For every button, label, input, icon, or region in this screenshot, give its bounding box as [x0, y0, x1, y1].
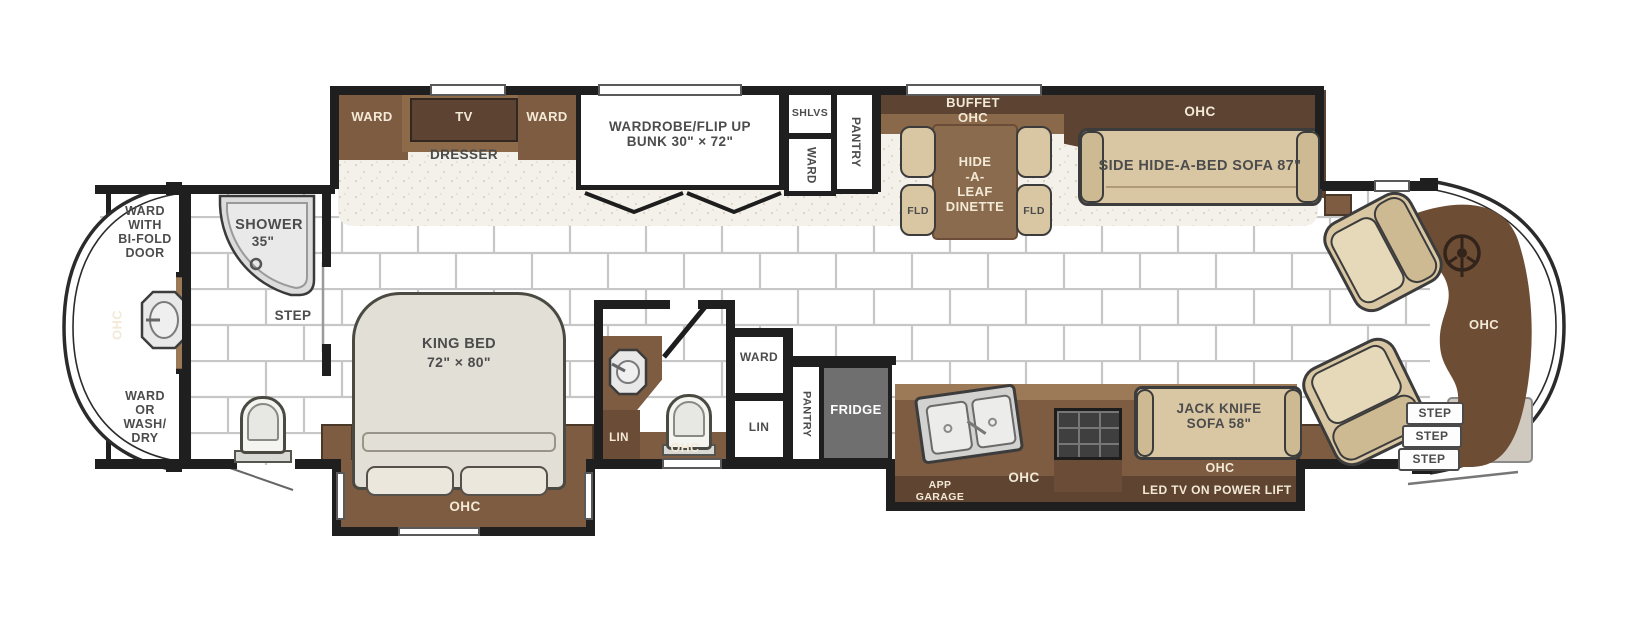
- side-sofa-seat-line: [1106, 186, 1296, 188]
- wall-midbath-top: [594, 300, 670, 309]
- rear-vanity-counter: [128, 278, 186, 368]
- dinette-table: [932, 124, 1018, 240]
- mid-toilet-icon: [666, 394, 712, 450]
- window-bedslide-left: [336, 472, 345, 520]
- midbath-lin-cabinet: [598, 410, 640, 462]
- shower-drain-icon: [251, 259, 261, 269]
- dinette-chair-bottom-left: [900, 184, 936, 236]
- steering-wheel-icon: [1445, 236, 1479, 277]
- ward-vert-closet: [784, 134, 836, 196]
- dinette-chair-top-left: [900, 126, 936, 178]
- cooktop-base-shadow: [1054, 458, 1122, 492]
- bedroom-ward-right-cabinet: [518, 90, 578, 160]
- nightstand-left: [321, 424, 353, 462]
- rv-floor-plan: STEP STEP STEP WARD WITH BI-FOLD DOOR OH…: [0, 0, 1625, 630]
- ward-mid-closet: [730, 332, 788, 398]
- shower-size-label: 35": [240, 234, 286, 250]
- dinette-chair-top-right: [1016, 126, 1052, 178]
- wall-pantry-buffet: [872, 90, 881, 192]
- shower-pan: [220, 196, 314, 295]
- window-bedroom-slide: [430, 84, 506, 96]
- rear-cap-bumper-bottom: [166, 459, 182, 472]
- cooktop-icon: [1054, 408, 1122, 460]
- bedroom-door-swing: [230, 468, 293, 490]
- wall-bottom-rear-b: [295, 459, 335, 469]
- jack-knife-sofa: [1134, 386, 1302, 460]
- entry-step-1: STEP: [1406, 402, 1464, 425]
- ward-bifold-closet: [106, 187, 184, 277]
- dash-ohc-label: OHC: [1460, 316, 1508, 334]
- wall-rear-closet-divider: [182, 185, 191, 465]
- front-cap-bumper-top: [1420, 178, 1438, 191]
- jack-knife-arm-right: [1284, 389, 1302, 457]
- window-midbath: [662, 458, 722, 469]
- shower-label: SHOWER: [228, 216, 310, 234]
- entry-step-3-label: STEP: [1413, 453, 1446, 467]
- wall-top-rear: [95, 185, 335, 194]
- window-bunk: [598, 84, 742, 96]
- shlvs-closet: [784, 90, 836, 138]
- wall-slide-left: [330, 86, 339, 189]
- entry-step-1-label: STEP: [1419, 407, 1452, 421]
- entry-step-2: STEP: [1402, 425, 1462, 448]
- bedroom-ward-left-cabinet: [336, 90, 408, 160]
- wall-wardcol-right: [784, 328, 793, 462]
- midbath-door: [664, 307, 705, 357]
- window-bedslide-right: [584, 472, 593, 520]
- pillow-right: [460, 466, 548, 496]
- wall-wardcol-left: [726, 300, 735, 462]
- pillow-left: [366, 466, 454, 496]
- rear-toilet-icon: [240, 396, 286, 454]
- rear-step-label: STEP: [264, 306, 322, 326]
- entry-step-2-label: STEP: [1416, 430, 1449, 444]
- entry-step-3: STEP: [1398, 448, 1460, 471]
- wall-kitchenslide-bottom: [886, 502, 1304, 511]
- wall-pantry-fridge-top: [784, 356, 896, 365]
- wall-bath-bedroom-stub: [322, 344, 331, 376]
- bunk-fold-marks: [585, 193, 781, 212]
- wall-wardcol-top: [726, 328, 792, 337]
- fridge: [820, 364, 892, 462]
- ward-washdry-closet: [106, 369, 184, 464]
- tv-cabinet: [410, 98, 518, 142]
- window-bedslide-bottom: [398, 527, 480, 536]
- kitchen-sink-icon: [914, 383, 1024, 465]
- king-bed-blanket-line: [362, 432, 556, 452]
- side-sofa-arm-left: [1080, 131, 1104, 203]
- side-sofa: [1078, 128, 1322, 206]
- wall-bottom-mid: [594, 459, 892, 469]
- wardrobe-bunk-closet: [576, 90, 784, 190]
- nightstand-right: [564, 424, 594, 462]
- pantry-mid-closet: [788, 362, 824, 464]
- dinette-chair-bottom-right: [1016, 184, 1052, 236]
- wall-bath-bedroom: [322, 185, 331, 267]
- king-bed: [352, 292, 566, 490]
- window-dinette: [906, 84, 1042, 96]
- rear-cap-bumper-top: [166, 182, 182, 195]
- side-sofa-arm-right: [1296, 131, 1320, 203]
- jack-knife-arm-left: [1136, 389, 1154, 457]
- wall-midbath-left: [594, 300, 603, 462]
- midbath-vanity: [598, 336, 662, 414]
- lin-mid-closet: [730, 396, 788, 462]
